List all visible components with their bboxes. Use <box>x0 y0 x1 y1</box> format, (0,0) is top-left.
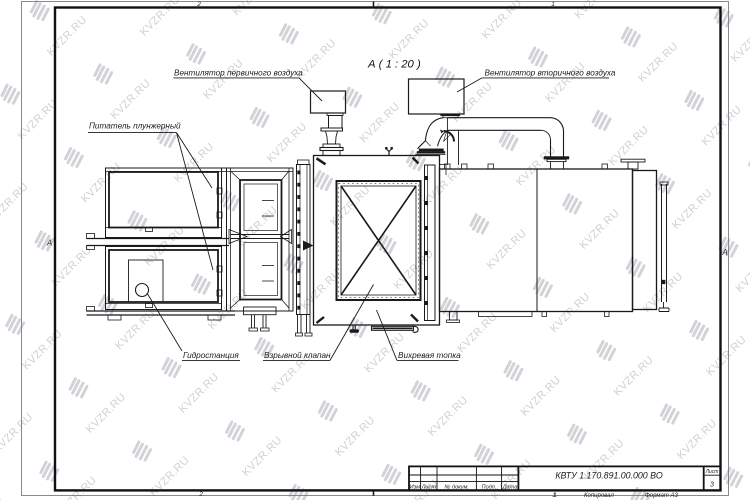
svg-text:3: 3 <box>710 482 714 489</box>
svg-text:Вентилятор вторичного воздуха: Вентилятор вторичного воздуха <box>485 69 616 78</box>
svg-text:Вихревая топка: Вихревая топка <box>398 351 461 360</box>
svg-text:Дата: Дата <box>502 485 518 491</box>
svg-text:№ докум.: № докум. <box>444 485 469 491</box>
svg-text:1: 1 <box>554 493 557 499</box>
svg-text:Лист: Лист <box>421 485 437 491</box>
svg-text:Питатель плунжерный: Питатель плунжерный <box>89 122 181 131</box>
svg-text:Подп.: Подп. <box>482 485 497 491</box>
svg-text:А: А <box>46 239 52 248</box>
svg-text:2: 2 <box>198 491 203 498</box>
svg-text:А ( 1 : 20 ): А ( 1 : 20 ) <box>367 59 421 71</box>
svg-text:Вентилятор первичного воздуха: Вентилятор первичного воздуха <box>174 69 303 78</box>
svg-text:Гидростанция: Гидростанция <box>183 351 239 360</box>
svg-text:А: А <box>721 248 727 257</box>
svg-text:Лист: Лист <box>705 469 719 475</box>
svg-text:Формат А3: Формат А3 <box>645 493 678 499</box>
svg-text:Взрывной клапан: Взрывной клапан <box>264 351 331 360</box>
svg-text:Копировал: Копировал <box>584 493 614 499</box>
svg-text:КВТУ 1.170.891.00.000 ВО: КВТУ 1.170.891.00.000 ВО <box>555 471 663 481</box>
svg-text:Изм: Изм <box>410 485 421 491</box>
